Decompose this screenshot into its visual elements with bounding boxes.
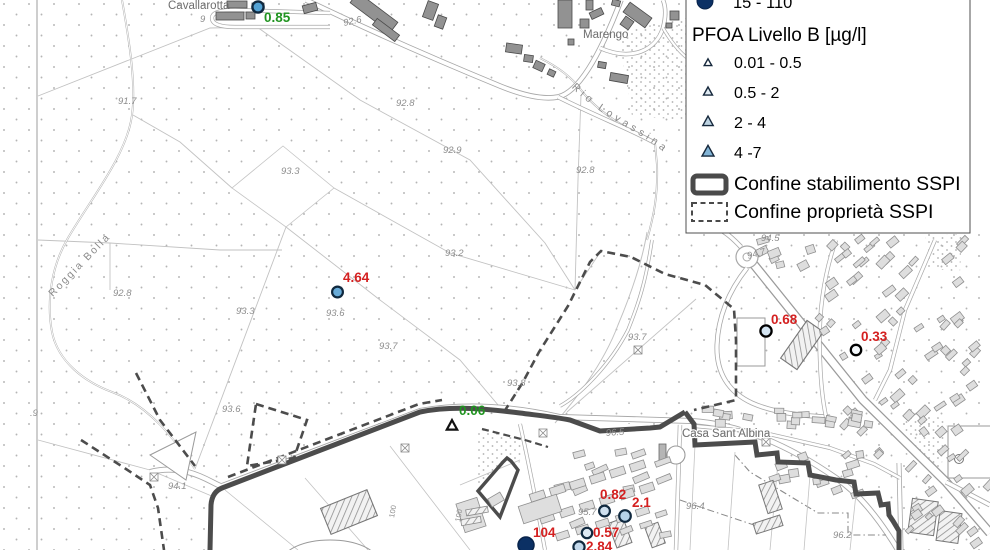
svg-text:94.1: 94.1 [168, 481, 187, 492]
svg-text:104: 104 [533, 525, 556, 540]
svg-text:9: 9 [200, 14, 206, 25]
svg-text:Confine proprietà SSPI: Confine proprietà SSPI [734, 201, 933, 223]
svg-text:93.7: 93.7 [628, 332, 647, 343]
svg-text:.9: .9 [30, 408, 39, 419]
svg-text:0.57: 0.57 [593, 525, 619, 540]
svg-text:92.8: 92.8 [576, 165, 595, 176]
svg-text:0.85: 0.85 [264, 10, 291, 25]
svg-text:2.1: 2.1 [632, 495, 651, 510]
svg-text:93.2: 93.2 [445, 248, 464, 259]
svg-text:0.06: 0.06 [459, 403, 486, 418]
svg-text:0.33: 0.33 [861, 329, 888, 344]
svg-text:PFOA Livello B [µg/l]: PFOA Livello B [µg/l] [692, 25, 867, 46]
svg-text:91.7: 91.7 [118, 96, 137, 107]
svg-text:92.9: 92.9 [443, 145, 462, 156]
svg-text:93.8: 93.8 [507, 378, 526, 389]
svg-text:4.64: 4.64 [343, 270, 370, 285]
svg-text:93.3: 93.3 [236, 306, 255, 317]
svg-text:96.4: 96.4 [686, 501, 705, 512]
svg-text:94.5: 94.5 [761, 233, 780, 244]
svg-text:93.6: 93.6 [222, 404, 241, 415]
svg-text:95.7: 95.7 [578, 507, 597, 518]
svg-text:0.82: 0.82 [600, 487, 626, 502]
svg-text:96.5: 96.5 [605, 427, 625, 439]
svg-text:93.3: 93.3 [281, 166, 300, 177]
svg-text:96.2: 96.2 [833, 530, 852, 541]
svg-text:Confine stabilimento SSPI: Confine stabilimento SSPI [734, 173, 961, 195]
svg-text:15 - 110: 15 - 110 [733, 0, 792, 12]
svg-text:92.8: 92.8 [396, 98, 415, 109]
svg-text:0.68: 0.68 [771, 312, 798, 327]
svg-text:Cavallarotta: Cavallarotta [168, 0, 230, 12]
svg-text:92.8: 92.8 [113, 288, 132, 299]
svg-text:Marengo: Marengo [583, 29, 628, 41]
svg-text:93.7: 93.7 [379, 341, 398, 352]
svg-text:4 -7: 4 -7 [734, 145, 762, 162]
svg-text:2.84: 2.84 [586, 539, 613, 550]
svg-text:Casa Sant Albina: Casa Sant Albina [682, 428, 771, 440]
svg-text:0.5 - 2: 0.5 - 2 [734, 85, 779, 102]
svg-text:93.6: 93.6 [326, 308, 345, 319]
svg-text:2 - 4: 2 - 4 [734, 115, 766, 132]
svg-text:0.01 - 0.5: 0.01 - 0.5 [734, 55, 802, 72]
